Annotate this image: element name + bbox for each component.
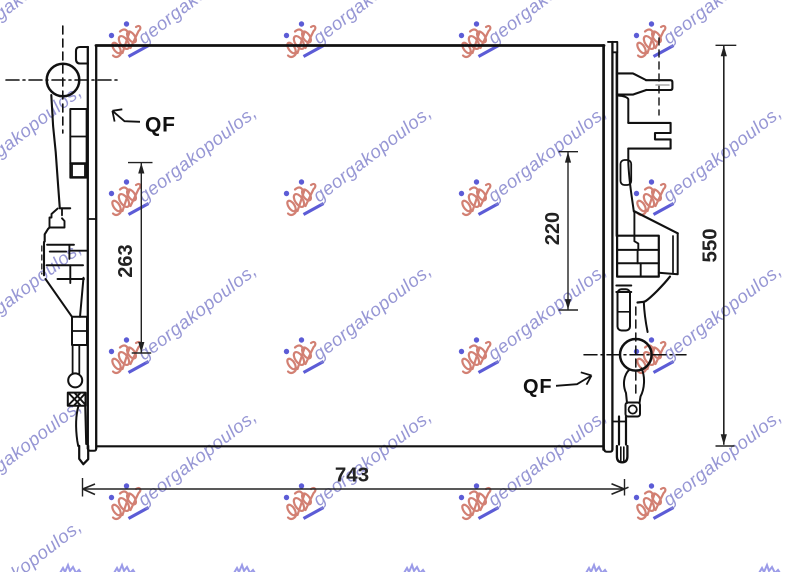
svg-text:263: 263	[115, 244, 137, 277]
svg-text:743: 743	[335, 464, 369, 487]
svg-text:220: 220	[542, 212, 564, 245]
svg-text:QF: QF	[523, 376, 552, 398]
svg-text:550: 550	[698, 228, 721, 262]
svg-text:QF: QF	[145, 114, 176, 137]
